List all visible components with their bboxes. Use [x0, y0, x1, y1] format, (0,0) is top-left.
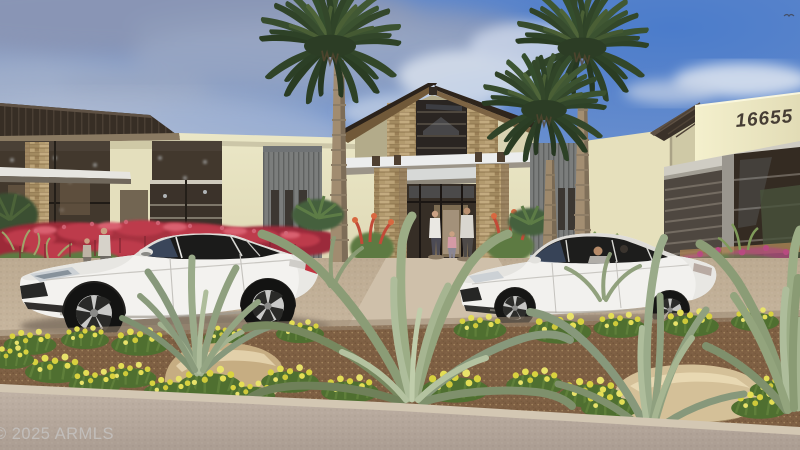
svg-text:© 2025 ARMLS: © 2025 ARMLS — [0, 425, 114, 443]
